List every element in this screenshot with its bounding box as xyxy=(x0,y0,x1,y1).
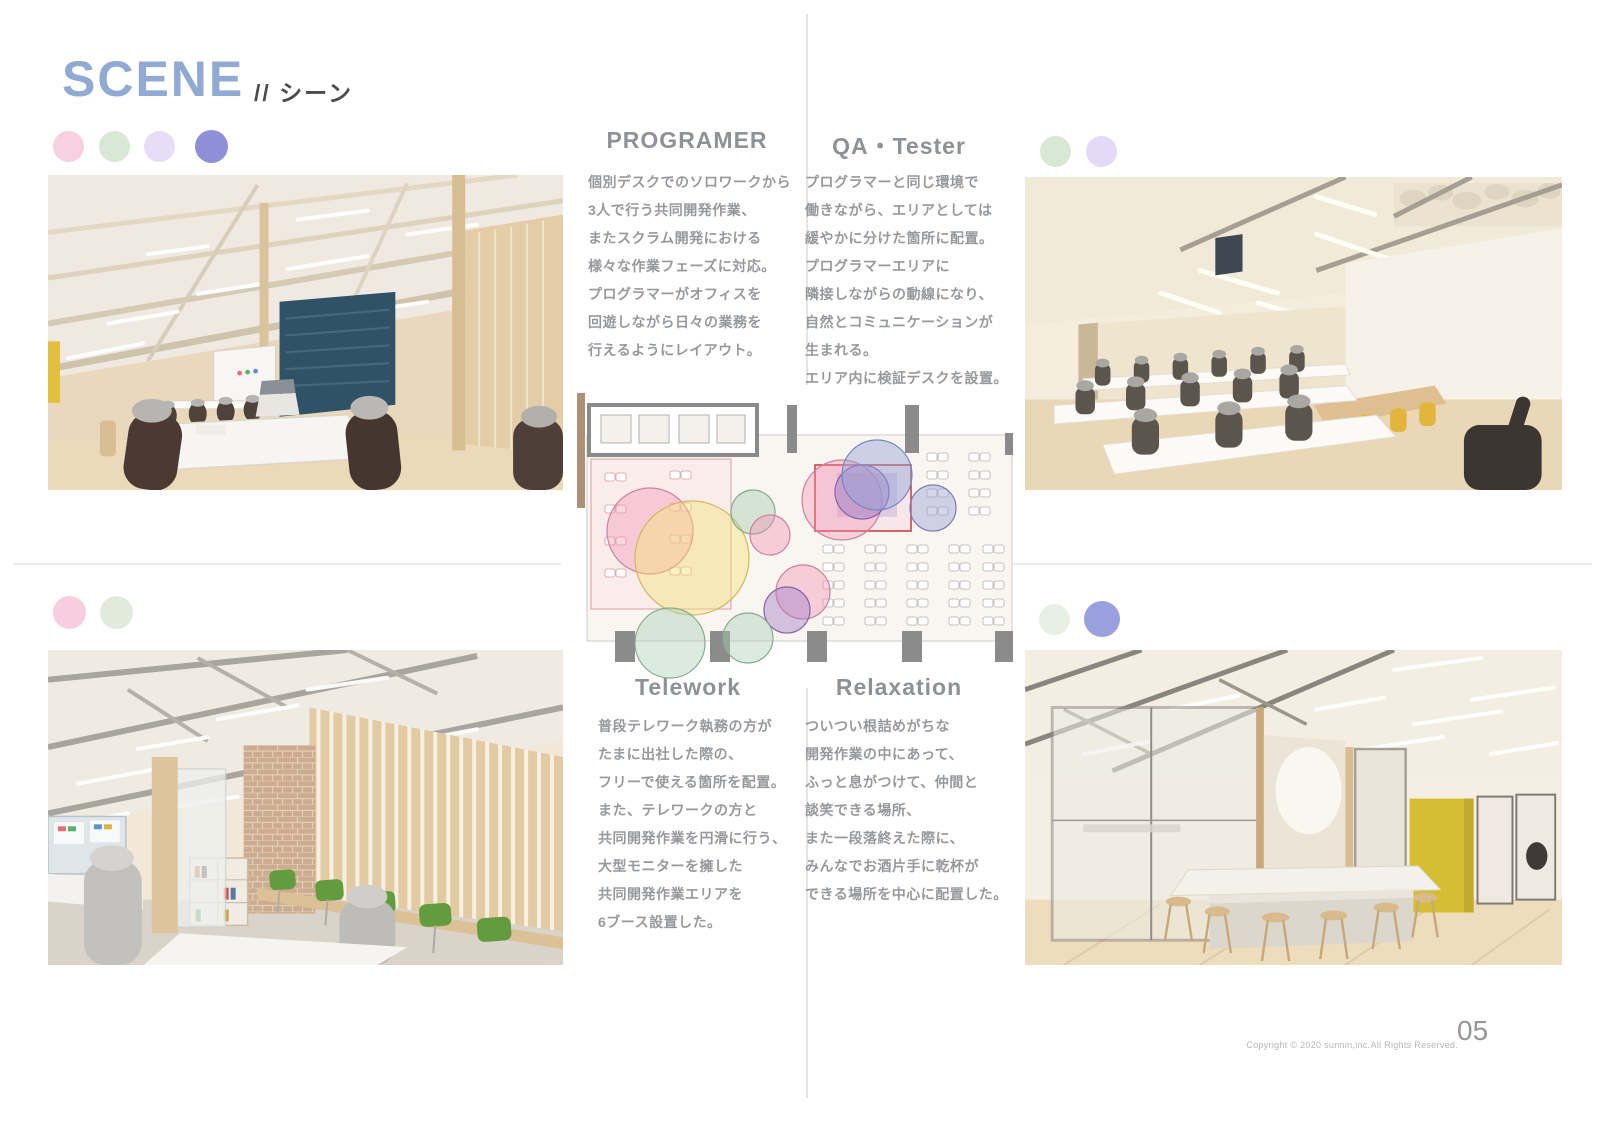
section-body-programer: 個別デスクでのソロワークから3人で行う共同開発作業、またスクラム開発における様々… xyxy=(588,168,798,364)
render-programmer-office-graphic xyxy=(48,175,563,490)
render-relaxation-area xyxy=(1025,650,1562,965)
divider-horizontal-right xyxy=(1008,563,1592,565)
legend-dot-lavender xyxy=(144,131,175,162)
qa-dot-green xyxy=(1040,136,1071,167)
legend-dot-green xyxy=(99,131,130,162)
divider-horizontal-left xyxy=(13,563,561,565)
section-body-relaxation: ついつい根詰めがちな開発作業の中にあって、ふっと息がつけて、仲間と談笑できる場所… xyxy=(805,712,1005,908)
telework-dot-pink xyxy=(53,596,86,629)
render-programmer-office xyxy=(48,175,563,490)
render-telework-area xyxy=(48,650,563,965)
qa-dot-lavender xyxy=(1086,136,1117,167)
section-body-telework: 普段テレワーク執務の方がたまに出社した際の、フリーで使える箇所を配置。また、テレ… xyxy=(598,712,808,936)
slide-scene: SCENE // シーン PROGRAMER 個別デスクでのソロワークから3人で… xyxy=(0,0,1605,1128)
footer-copyright: Copyright © 2020 sunnin,inc.All Rights R… xyxy=(1243,1040,1458,1050)
relaxation-dot-green xyxy=(1039,604,1070,635)
section-body-qa: プログラマーと同じ環境で働きながら、エリアとしては緩やかに分けた箇所に配置。プロ… xyxy=(805,168,1005,392)
telework-dot-green xyxy=(100,596,133,629)
section-title-programer: PROGRAMER xyxy=(588,127,786,154)
floor-plan xyxy=(575,393,1018,693)
render-telework-area-graphic xyxy=(48,650,563,965)
render-qa-tester-office xyxy=(1025,177,1562,490)
floor-plan-graphic xyxy=(575,393,1018,693)
section-title-qa: QA・Tester xyxy=(800,127,998,161)
legend-dot-periwinkle xyxy=(195,130,228,163)
legend-dot-pink xyxy=(53,131,84,162)
page-title: SCENE xyxy=(62,50,244,108)
page-number: 05 xyxy=(1457,1015,1488,1047)
render-relaxation-area-graphic xyxy=(1025,650,1562,965)
render-qa-tester-office-graphic xyxy=(1025,177,1562,490)
relaxation-dot-periwinkle xyxy=(1084,601,1120,637)
page-subtitle: // シーン xyxy=(254,74,353,108)
